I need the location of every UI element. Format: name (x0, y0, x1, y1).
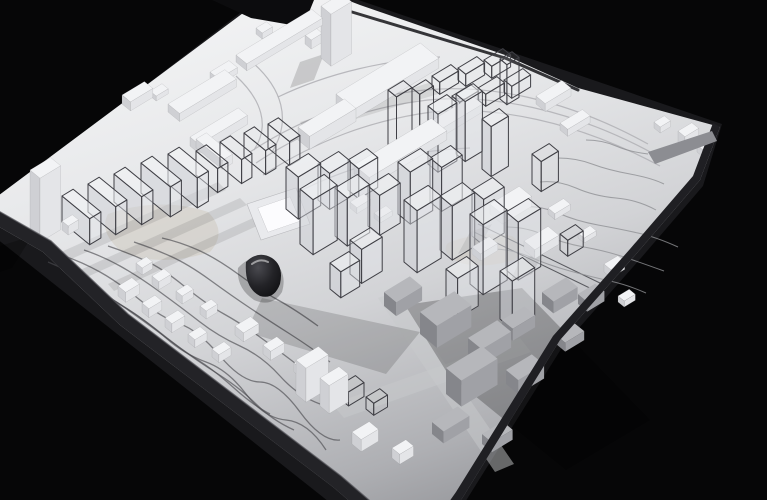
model-building (500, 52, 519, 105)
architectural-model-photo (0, 0, 767, 500)
model-building (368, 174, 400, 236)
model-building (456, 84, 482, 162)
model-building (482, 109, 508, 177)
model-building (300, 174, 337, 254)
model-building (30, 158, 61, 243)
model-building (321, 0, 352, 66)
model-photo (0, 0, 767, 500)
model-building (404, 185, 441, 272)
model-building (440, 183, 475, 261)
